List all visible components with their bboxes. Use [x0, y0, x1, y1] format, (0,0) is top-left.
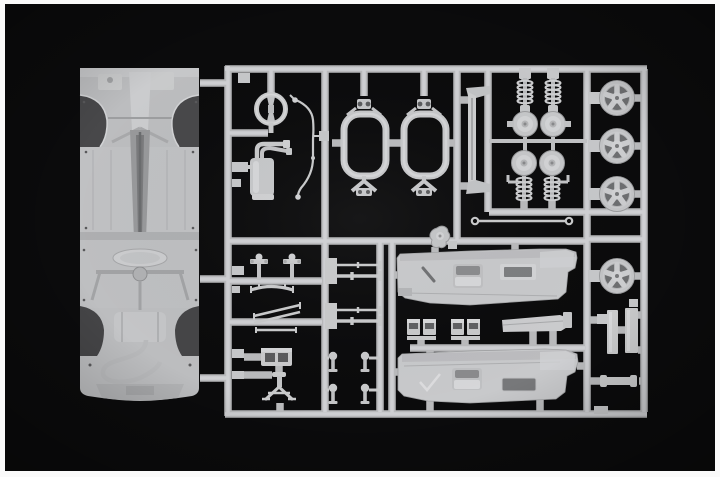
sprue-photo	[0, 0, 720, 477]
photo	[0, 0, 720, 477]
vignette-overlay	[5, 4, 715, 471]
